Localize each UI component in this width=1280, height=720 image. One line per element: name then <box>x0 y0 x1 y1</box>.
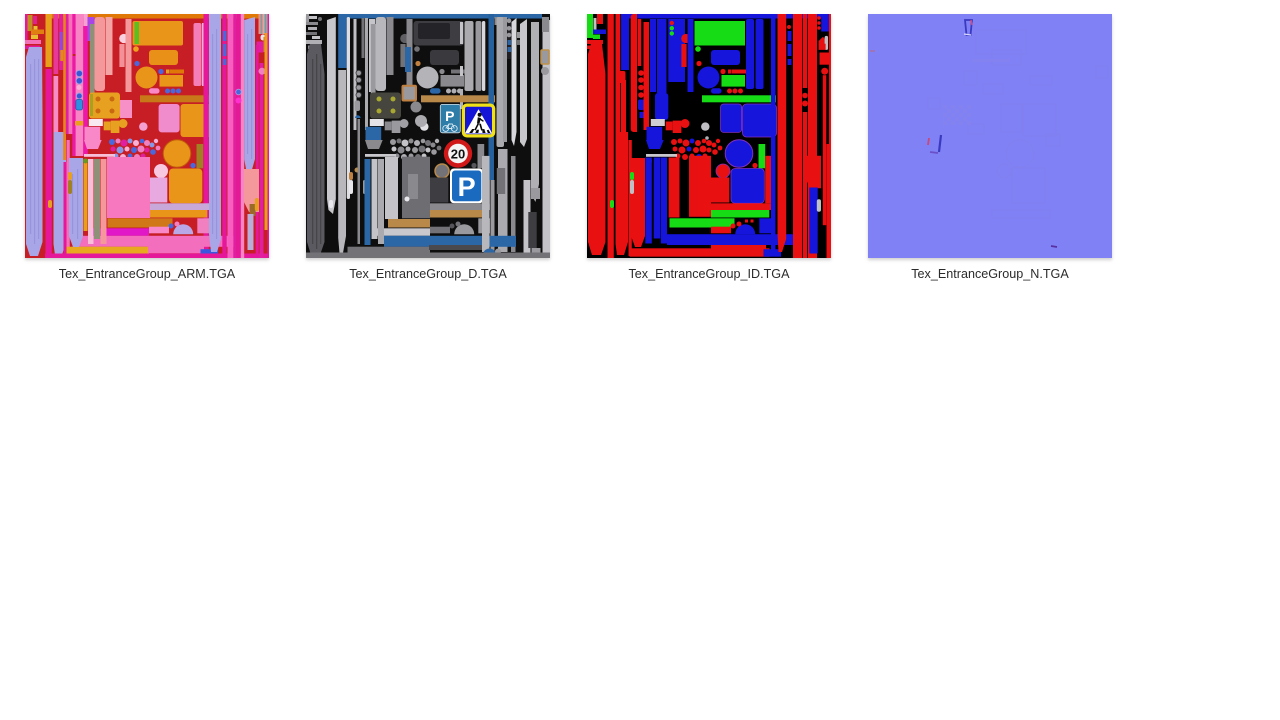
svg-text:P: P <box>458 172 476 202</box>
svg-text:20: 20 <box>451 146 465 161</box>
svg-text:P: P <box>445 108 454 124</box>
